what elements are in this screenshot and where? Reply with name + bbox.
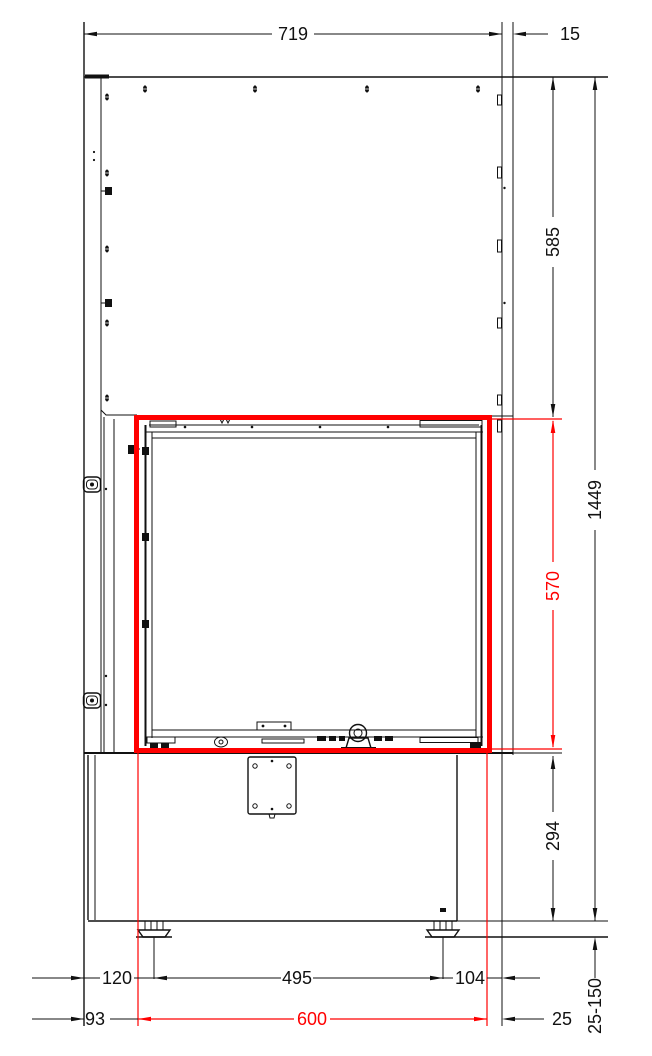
back-panel-bottom-left (101, 410, 137, 415)
left-edge-dot (105, 675, 107, 677)
dim-upper-height: 585 (543, 77, 563, 417)
dim-opening-height-label: 570 (543, 571, 563, 601)
dim-feet-range-label: 25-150 (585, 978, 605, 1034)
dim-plinth-height: 294 (543, 756, 563, 921)
top-right-plate (420, 421, 482, 428)
dim-opening-right-offset-label: 25 (552, 1009, 572, 1029)
dim-right-foot-offset-label: 104 (455, 968, 485, 988)
dim-right-flange-label: 15 (560, 24, 580, 44)
hinge-bolt-3 (142, 620, 149, 628)
left-panel-fasteners (93, 94, 112, 402)
left-bolt-2 (105, 299, 112, 307)
dim-opening-left-offset-label: 93 (85, 1009, 105, 1029)
hinge-bolt-1 (142, 447, 149, 455)
dim-right-flange: 15 (513, 24, 580, 44)
dim-foot-offsets: 120 495 104 (32, 968, 540, 988)
dim-feet-spacing-label: 495 (282, 968, 312, 988)
dim-overall-height: 1449 (585, 77, 605, 921)
dim-left-foot-offset-label: 120 (102, 968, 132, 988)
dim-top-width: 719 (84, 24, 502, 44)
dim-feet-range: 25-150 (585, 937, 605, 1034)
plinth-vent-dot (440, 908, 446, 912)
dim-overall-height-label: 1449 (585, 480, 605, 520)
technical-drawing: 719 15 585 1449 570 294 (0, 0, 652, 1056)
top-left-clip (85, 75, 109, 79)
hinge-bolt-outer (128, 445, 135, 454)
burner-strip (147, 736, 481, 748)
plinth (88, 755, 608, 937)
leveling-foot-left (138, 921, 170, 937)
dim-opening-width-label: 600 (297, 1009, 327, 1029)
fireplace-front-elevation: 719 15 585 1449 570 294 (0, 0, 652, 1056)
leveling-foot-right (427, 921, 459, 937)
control-knob (341, 725, 376, 749)
red-extension-lines (138, 419, 562, 1026)
top-screw-holes (143, 85, 481, 92)
unit-body (84, 22, 608, 1026)
dim-opening-offsets: 93 600 25 (32, 1009, 572, 1029)
hinge-bolt-2 (142, 533, 149, 541)
dim-plinth-height-label: 294 (543, 821, 563, 851)
dim-top-width-label: 719 (278, 24, 308, 44)
firebox-door (128, 417, 483, 748)
left-bolt-1 (105, 187, 112, 195)
access-plate (248, 757, 296, 818)
dim-opening-height: 570 (543, 420, 563, 748)
dim-upper-height-label: 585 (543, 227, 563, 257)
highlight-opening-rect (137, 418, 490, 751)
top-left-plate (150, 421, 176, 427)
